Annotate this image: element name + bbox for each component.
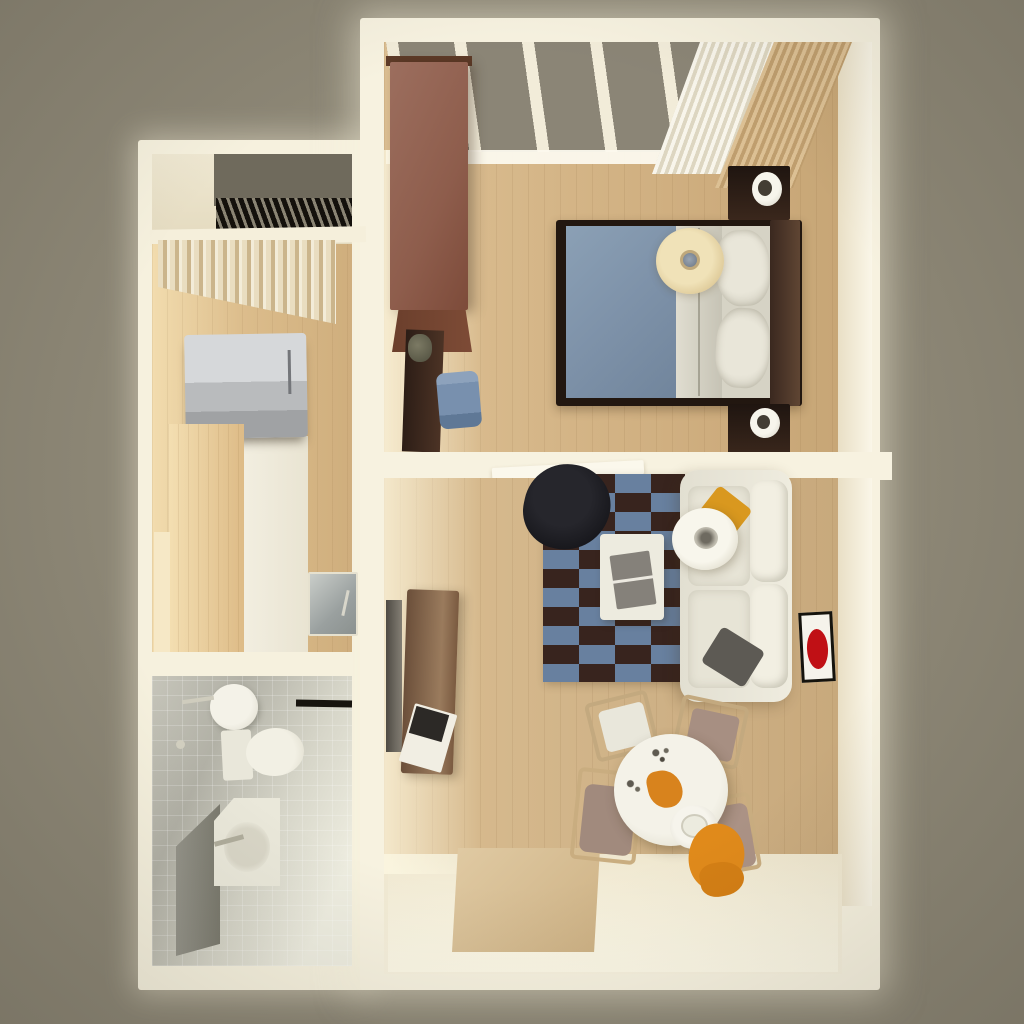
apartment-floorplan-render — [0, 0, 1024, 1024]
vignette — [0, 0, 1024, 1024]
